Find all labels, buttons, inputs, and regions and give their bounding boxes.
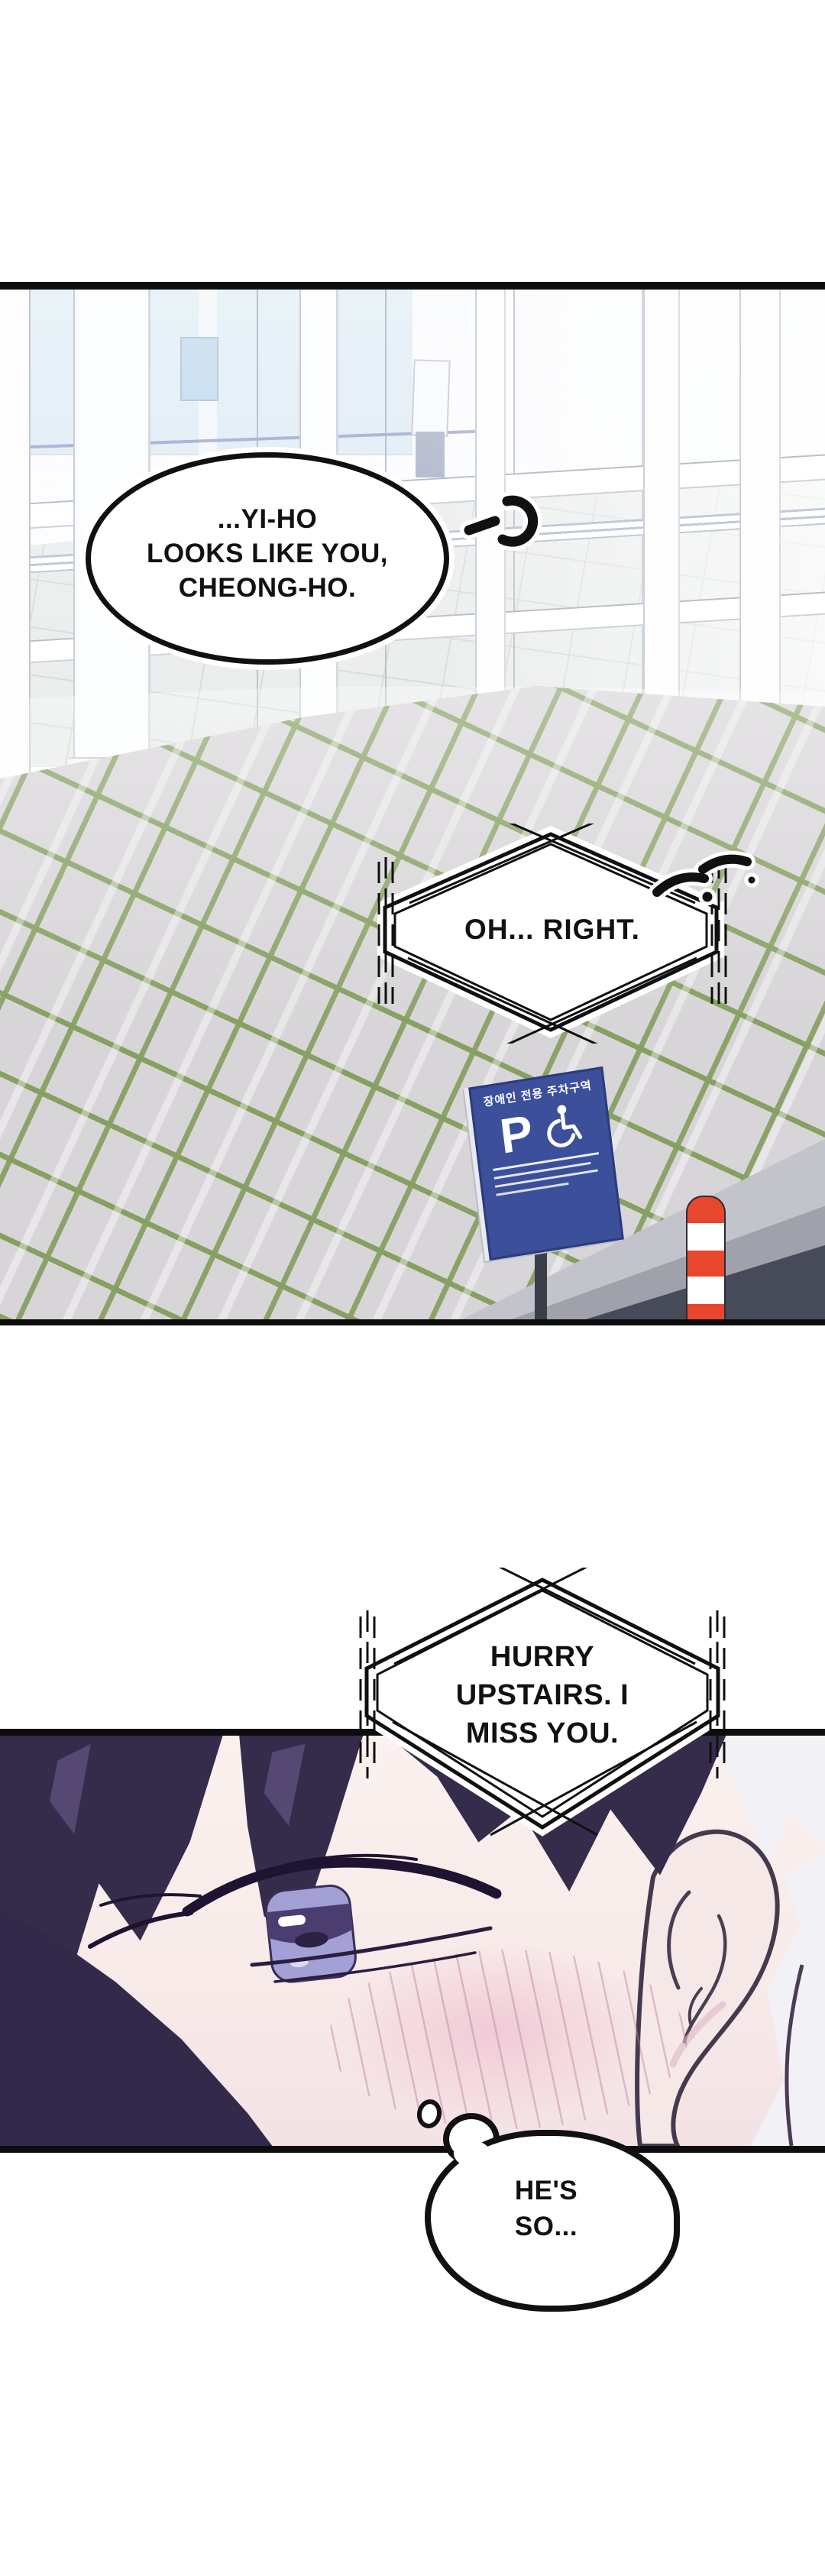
speech-line: CHEONG-HO. (91, 571, 444, 605)
column-left-edge (0, 290, 31, 794)
bollard (686, 1196, 726, 1321)
parking-sign: 장애인 전용 주차구역 P (468, 1066, 624, 1260)
thought-bubble-merge-patch (454, 2141, 490, 2167)
comic-page: 장애인 전용 주차구역 P ...YI-HO LOOKS LIKE (0, 0, 825, 2576)
speech-line: HURRY (345, 1638, 739, 1676)
speech-bubble-hurry: HURRY UPSTAIRS. I MISS YOU. (345, 1568, 739, 1840)
thought-line: SO... (425, 2209, 668, 2244)
dash-and-curve-mark-icon (457, 481, 550, 553)
flustered-sweat-marks-icon (646, 845, 765, 924)
speech-bubble-yiho: ...YI-HO LOOKS LIKE YOU, CHEONG-HO. (86, 452, 449, 665)
speech-line: MISS YOU. (345, 1714, 739, 1752)
thought-line: HE'S (425, 2173, 668, 2209)
parking-letter: P (497, 1108, 535, 1161)
speech-line: ...YI-HO (91, 502, 444, 536)
panel-building-exterior: 장애인 전용 주차구역 P (0, 282, 825, 1325)
speech-line: UPSTAIRS. I (345, 1676, 739, 1714)
thought-bubble-hes-so: HE'S SO... (425, 2113, 680, 2306)
speech-line: LOOKS LIKE YOU, (91, 536, 444, 571)
column-right-a (643, 290, 680, 711)
wheelchair-icon (537, 1100, 587, 1154)
column-right-b (739, 290, 781, 717)
